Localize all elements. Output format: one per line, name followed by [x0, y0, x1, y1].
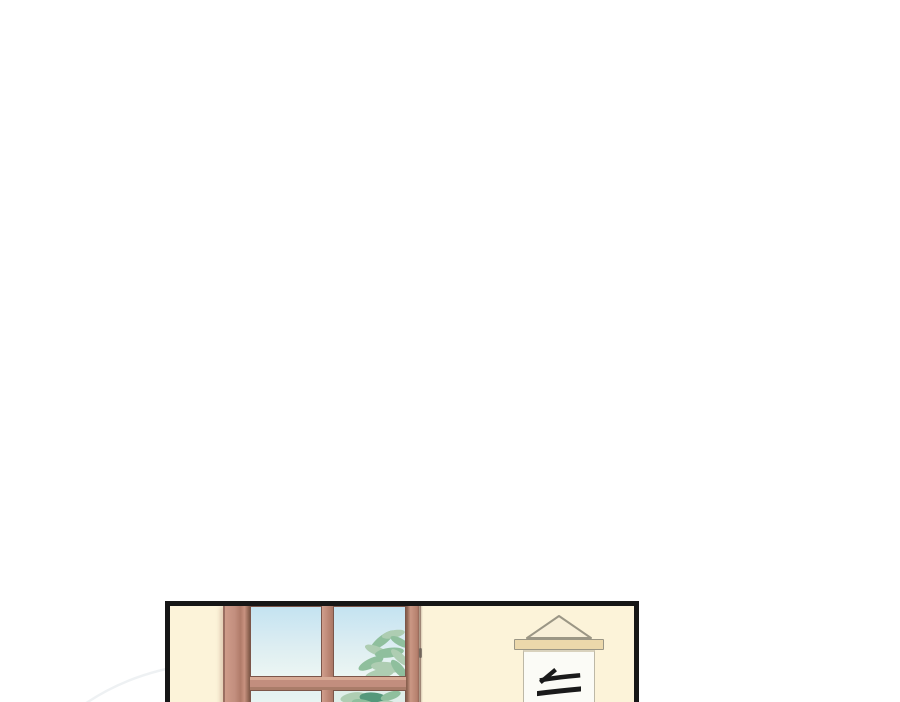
plant-foliage-lower — [334, 691, 405, 702]
frame-shadow-mark — [419, 648, 422, 658]
hanging-scroll — [514, 615, 604, 702]
window-pane-top-left — [250, 606, 322, 677]
page-background — [0, 0, 900, 702]
window-frame-left-pillar — [225, 606, 250, 702]
scroll-hanger-triangle — [526, 615, 592, 639]
classroom-wall — [170, 606, 634, 702]
scroll-paper — [523, 650, 595, 702]
decorative-arc — [0, 0, 900, 702]
window-mullion-horizontal — [250, 677, 406, 690]
scroll-character-glyph — [537, 668, 581, 702]
comic-panel — [165, 601, 639, 702]
window-pane-bottom-left — [250, 690, 322, 702]
scroll-rod — [514, 639, 604, 650]
plant-foliage — [334, 607, 405, 676]
window-pane-top-right — [333, 606, 406, 677]
window — [223, 606, 419, 702]
window-pane-bottom-right — [333, 690, 406, 702]
